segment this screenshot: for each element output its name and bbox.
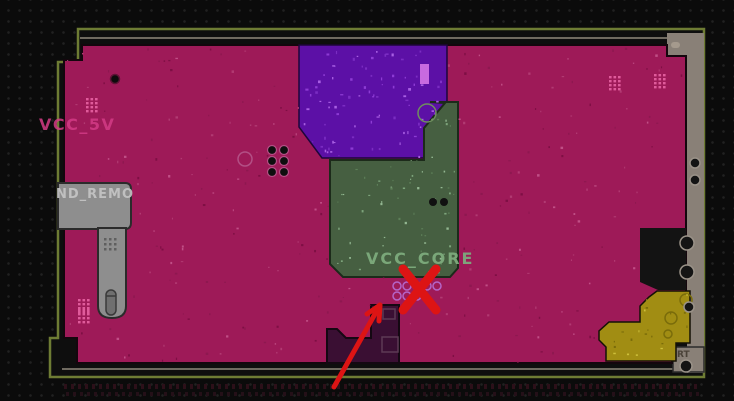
pcb-canvas[interactable]: VCC_5V ND_REMO VCC_CORE RT [0, 0, 734, 401]
pcb-render-layer [0, 0, 734, 401]
connector-slot [106, 290, 116, 315]
notch-pad [671, 42, 680, 48]
plane-void-region [640, 228, 686, 290]
connector-pin-rows-bottom [64, 384, 699, 396]
